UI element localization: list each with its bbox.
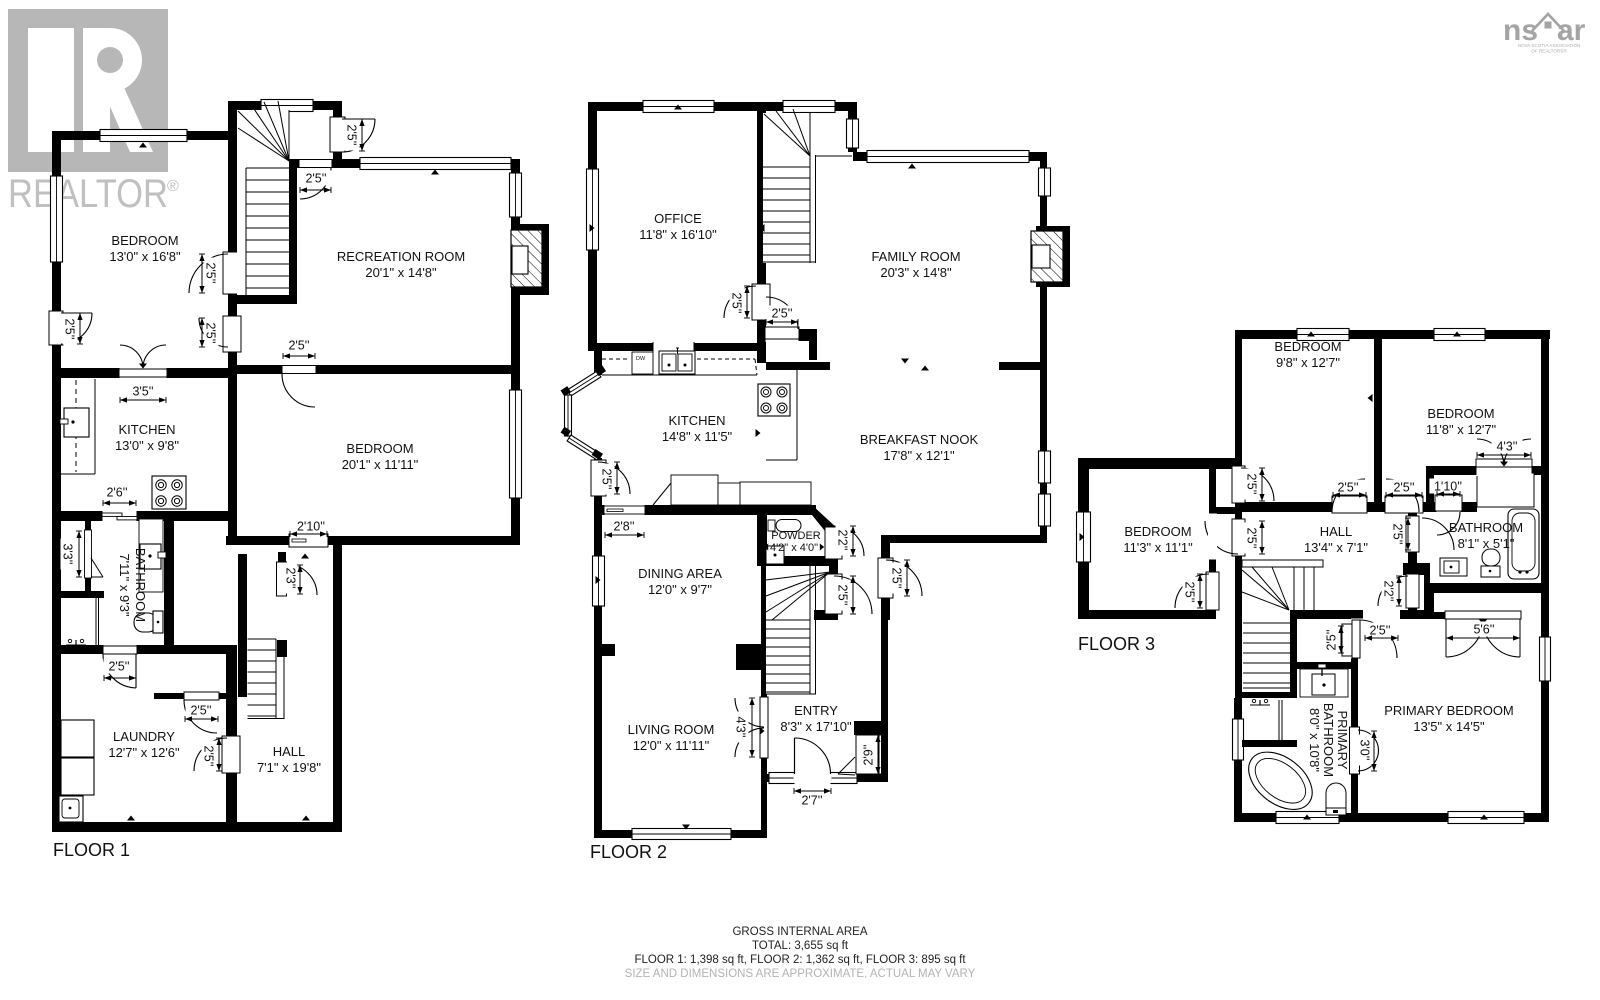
svg-text:2'5'': 2'5'' [1183,581,1197,602]
svg-text:KITCHEN: KITCHEN [118,422,175,437]
svg-text:DINING AREA: DINING AREA [638,566,722,581]
svg-text:8'3" x 17'10": 8'3" x 17'10" [780,719,852,734]
svg-text:2'5'': 2'5'' [305,172,326,186]
svg-text:2'7'': 2'7'' [801,794,822,808]
svg-text:2'5'': 2'5'' [288,339,309,353]
svg-text:ENTRY: ENTRY [794,703,838,718]
svg-text:2'8'': 2'8'' [613,520,634,534]
svg-text:NOVA SCOTIA ASSOCIATION: NOVA SCOTIA ASSOCIATION [1518,43,1581,48]
svg-text:11'8" x 16'10": 11'8" x 16'10" [639,227,717,242]
svg-text:13'0" x 16'8": 13'0" x 16'8" [109,249,181,264]
svg-text:13'5" x 14'5": 13'5" x 14'5" [1413,719,1485,734]
svg-text:8'1" x 5'1": 8'1" x 5'1" [1458,536,1515,551]
svg-text:2'10'': 2'10'' [297,520,325,534]
svg-text:2'5'': 2'5'' [1245,473,1259,494]
svg-text:FAMILY ROOM: FAMILY ROOM [871,249,960,264]
svg-text:2'5'': 2'5'' [600,468,614,489]
svg-text:FLOOR 3: FLOOR 3 [1078,634,1155,654]
svg-text:FLOOR 1: FLOOR 1 [53,840,130,860]
svg-text:2'5'': 2'5'' [1337,481,1358,495]
svg-text:20'1" x 14'8": 20'1" x 14'8" [365,265,437,280]
svg-text:TOTAL: 3,655 sq ft: TOTAL: 3,655 sq ft [752,940,849,952]
svg-text:FLOOR 1: 1,398 sq ft, FLOOR 2:: FLOOR 1: 1,398 sq ft, FLOOR 2: 1,362 sq … [634,954,966,966]
svg-text:20'3" x 14'8": 20'3" x 14'8" [880,265,952,280]
svg-text:3'3'': 3'3'' [61,543,75,564]
svg-text:LIVING ROOM: LIVING ROOM [628,722,715,737]
svg-text:BATHROOM: BATHROOM [1449,520,1523,535]
svg-text:FLOOR 2: FLOOR 2 [590,842,667,862]
svg-text:7'11" x 9'3": 7'11" x 9'3" [117,553,132,616]
svg-text:2'5'': 2'5'' [730,292,744,313]
svg-text:1'10'': 1'10'' [1434,480,1462,494]
svg-text:2'5'': 2'5'' [890,567,904,588]
svg-text:2'5'': 2'5'' [345,124,359,145]
svg-text:PRIMARY: PRIMARY [1335,711,1350,770]
svg-text:®: ® [167,178,179,195]
svg-text:12'7" x 12'6": 12'7" x 12'6" [108,745,180,760]
svg-text:20'1" x 11'11": 20'1" x 11'11" [342,457,419,472]
svg-text:8'0" x 10'8": 8'0" x 10'8" [1307,708,1322,772]
svg-text:BEDROOM: BEDROOM [1274,339,1341,354]
svg-text:2'5'': 2'5'' [1245,527,1259,548]
svg-text:13'0" x 9'8": 13'0" x 9'8" [115,438,179,453]
svg-text:LAUNDRY: LAUNDRY [113,729,175,744]
svg-text:POWDER: POWDER [771,530,821,542]
svg-text:12'0" x 9'7": 12'0" x 9'7" [648,582,712,597]
svg-text:2'6'': 2'6'' [106,486,127,500]
svg-text:13'4" x 7'1": 13'4" x 7'1" [1304,540,1368,555]
svg-text:3'5'': 3'5'' [132,385,153,399]
svg-text:GROSS INTERNAL AREA: GROSS INTERNAL AREA [732,926,867,938]
svg-text:2'2'': 2'2'' [1382,580,1396,601]
svg-text:2'5'': 2'5'' [204,262,218,283]
svg-text:2'5'': 2'5'' [202,745,216,766]
svg-text:17'8" x 12'1": 17'8" x 12'1" [883,448,955,463]
svg-text:OF REALTORS®: OF REALTORS® [1531,48,1567,54]
svg-text:2'5'': 2'5'' [108,660,129,674]
svg-text:14'8" x 11'5": 14'8" x 11'5" [662,429,733,444]
svg-text:2'2'': 2'2'' [836,529,850,550]
svg-text:BEDROOM: BEDROOM [346,441,413,456]
svg-text:3'0'': 3'0'' [1358,739,1372,760]
svg-text:2'9'': 2'9'' [862,744,876,765]
svg-text:2'5'': 2'5'' [771,307,792,321]
svg-text:2'5'': 2'5'' [836,584,850,605]
svg-text:2'3'': 2'3'' [284,567,298,588]
svg-text:2'5'': 2'5'' [1393,481,1414,495]
svg-text:2'5'': 2'5'' [1325,629,1339,650]
svg-text:11'3" x 11'1": 11'3" x 11'1" [1123,540,1193,555]
svg-text:BATHROOM: BATHROOM [133,548,148,622]
svg-text:4'3'': 4'3'' [734,716,748,737]
svg-text:12'0" x 11'11": 12'0" x 11'11" [633,738,710,753]
svg-text:RECREATION ROOM: RECREATION ROOM [337,249,465,264]
svg-text:BREAKFAST NOOK: BREAKFAST NOOK [860,432,979,447]
svg-text:KITCHEN: KITCHEN [668,413,725,428]
svg-text:4'3'': 4'3'' [1496,440,1517,454]
svg-text:PRIMARY BEDROOM: PRIMARY BEDROOM [1384,703,1514,718]
svg-text:OFFICE: OFFICE [654,211,702,226]
svg-text:2'5'': 2'5'' [63,318,77,339]
svg-text:SIZE AND DIMENSIONS ARE APPROX: SIZE AND DIMENSIONS ARE APPROXIMATE, ACT… [625,968,976,980]
svg-text:4'2" x 4'0": 4'2" x 4'0" [770,542,818,554]
svg-text:HALL: HALL [273,744,306,759]
svg-text:2'5'': 2'5'' [190,704,211,718]
svg-text:2'5'': 2'5'' [1391,523,1405,544]
svg-text:2'5'': 2'5'' [1369,624,1390,638]
svg-text:2'5'': 2'5'' [204,322,218,343]
svg-text:11'8" x 12'7": 11'8" x 12'7" [1426,422,1497,437]
svg-text:REALTOR: REALTOR [8,172,168,216]
svg-text:7'1" x 19'8": 7'1" x 19'8" [257,760,321,775]
svg-text:BEDROOM: BEDROOM [1124,524,1191,539]
svg-text:5'6'': 5'6'' [1473,623,1494,637]
svg-text:9'8" x 12'7": 9'8" x 12'7" [1276,355,1340,370]
svg-text:HALL: HALL [1320,524,1353,539]
svg-text:BEDROOM: BEDROOM [1427,406,1494,421]
svg-text:BATHROOM: BATHROOM [1321,703,1336,777]
svg-text:DW: DW [636,356,646,362]
svg-text:BEDROOM: BEDROOM [111,233,178,248]
